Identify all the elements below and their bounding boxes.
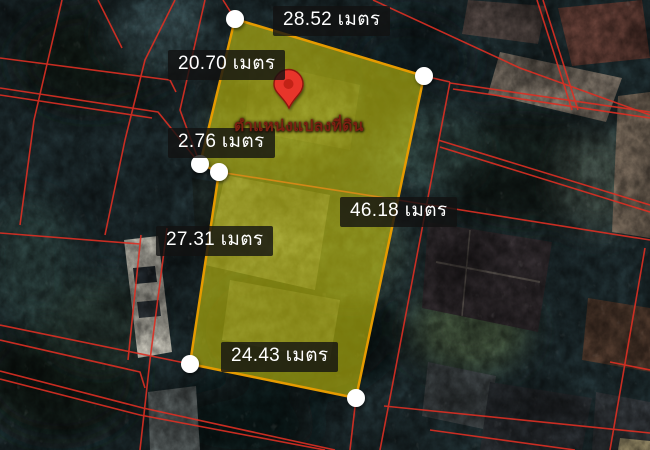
measurement-label-bottom: 24.43 เมตร (221, 342, 338, 372)
vertex-handle[interactable] (415, 67, 433, 85)
vertex-handle[interactable] (226, 10, 244, 28)
measurement-label-right: 46.18 เมตร (340, 197, 457, 227)
vertex-handle[interactable] (347, 389, 365, 407)
measurement-label-upper-left: 20.70 เมตร (168, 50, 285, 80)
measurement-label-top: 28.52 เมตร (273, 6, 390, 36)
satellite-map-canvas[interactable] (0, 0, 650, 450)
vertex-handle[interactable] (181, 355, 199, 373)
pin-caption-label: ตำแหน่งแปลงที่ดิน (234, 113, 364, 138)
vertex-handle[interactable] (210, 163, 228, 181)
map-viewport[interactable]: 28.52 เมตร 20.70 เมตร 2.76 เมตร 46.18 เม… (0, 0, 650, 450)
measurement-label-lower-left: 27.31 เมตร (156, 226, 273, 256)
